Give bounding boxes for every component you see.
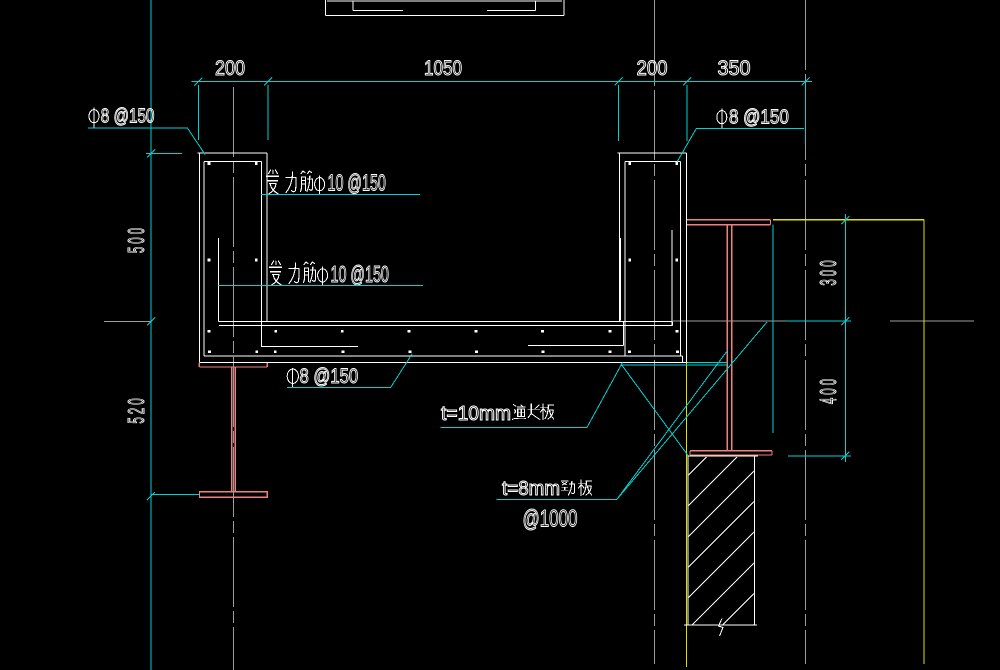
svg-text:8 @150: 8 @150 [300,365,359,388]
svg-text:520: 520 [124,395,149,423]
svg-text:8 @150: 8 @150 [729,106,789,128]
svg-text:@1000: @1000 [523,506,578,533]
svg-text:10 @150: 10 @150 [328,170,386,196]
svg-text:t=8mm: t=8mm [502,478,560,500]
svg-text:10 @150: 10 @150 [331,261,389,287]
svg-text:400: 400 [816,376,841,404]
svg-text:200: 200 [215,57,245,80]
svg-text:500: 500 [124,225,149,253]
svg-text:300: 300 [816,257,841,285]
svg-text:t=10mm: t=10mm [441,403,511,425]
svg-text:350: 350 [718,57,751,80]
svg-text:8 @150: 8 @150 [101,105,155,127]
svg-text:200: 200 [637,57,668,80]
svg-text:1050: 1050 [424,57,462,80]
